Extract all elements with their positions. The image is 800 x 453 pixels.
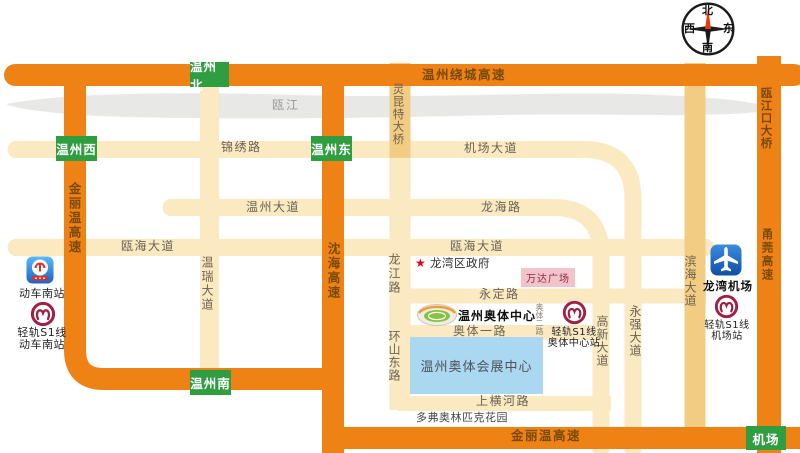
exit-wenzhou-east: 温州东 <box>311 136 352 161</box>
highway-yongguan-label: 甬莞高速 <box>761 228 773 282</box>
oujiang-river <box>6 93 757 118</box>
wenzhou-transit-map: 瓯江 温州绕城高速 金丽温高速 沈海高速 金丽温高速 甬莞高速 瓯江口大桥 灵昆… <box>0 0 800 453</box>
highway-jinliwen-bottom-label: 金丽温高速 <box>511 430 581 443</box>
airport-s1-station-label: 机场站 <box>701 331 753 343</box>
s1-logo-train-south <box>30 301 56 327</box>
expo-center-block: 温州奥体会展中心 <box>410 337 543 394</box>
road-yongding-label: 永定路 <box>479 288 520 300</box>
road-ouhai-mid-label: 瓯海大道 <box>450 240 504 252</box>
road-wenrui-label: 温瑞大道 <box>201 256 213 312</box>
exit-wenzhou-west: 温州西 <box>56 136 97 161</box>
road-jinxiu-label: 锦绣路 <box>221 141 262 153</box>
aoti-s1-station-label: 奥体中心站 <box>546 338 602 350</box>
road-aoti-2-label: 奥体二路 <box>535 303 543 335</box>
road-longjiang-label: 龙江路 <box>388 253 400 295</box>
road-huanshan-east-label: 环山东路 <box>388 330 400 382</box>
s1-logo-airport <box>714 294 739 319</box>
road-aoti-1-label: 奥体一路 <box>453 325 507 337</box>
road-shanghenghe-label: 上横河路 <box>476 395 530 407</box>
expo-center-label: 温州奥体会展中心 <box>420 356 532 375</box>
train-south-station-label: 动车南站 <box>18 288 66 299</box>
highway-shenhai-label: 沈海高速 <box>326 242 339 300</box>
government-star-icon: ★ <box>415 257 426 269</box>
road-longhai-label: 龙海路 <box>481 201 522 213</box>
railway-station-icon <box>26 256 54 284</box>
olympic-center-label: 温州奥体中心 <box>458 310 536 322</box>
road-ouhai-west-label: 瓯海大道 <box>121 240 175 252</box>
compass-west-label: 西 <box>684 23 695 34</box>
road-network-canvas <box>0 0 800 453</box>
longwan-airport-label: 龙湾机场 <box>703 281 753 293</box>
dove-garden-label: 多弗奥林匹克花园 <box>416 412 508 423</box>
s1-logo-aoti <box>562 300 587 325</box>
exit-wenzhou-south: 温州南 <box>190 370 231 395</box>
river-label: 瓯江 <box>272 99 300 111</box>
airport-icon <box>710 244 742 276</box>
exit-wenzhou-north: 温州北 <box>190 62 229 87</box>
compass-east-label: 东 <box>723 23 734 34</box>
road-wenzhou-avenue-label: 温州大道 <box>246 201 300 213</box>
road-binhai-label: 滨海大道 <box>684 255 696 307</box>
highway-jinliwen-left-label: 金丽温高速 <box>67 182 80 255</box>
train-south-s1-station-label: 动车南站 <box>14 339 70 351</box>
stadium-icon <box>416 303 458 327</box>
compass-south-label: 南 <box>702 42 713 53</box>
longwan-government-label: 龙湾区政府 <box>430 258 490 270</box>
oujiangkou-bridge-label: 瓯江口大桥 <box>760 87 772 150</box>
exit-airport: 机场 <box>746 426 786 450</box>
road-airport-avenue-label: 机场大道 <box>464 142 518 154</box>
highway-raocheng-label: 温州绕城高速 <box>422 69 506 82</box>
compass-north-label: 北 <box>702 5 713 16</box>
wanda-plaza-badge: 万达广场 <box>521 268 575 287</box>
road-yongqiang-label: 永强大道 <box>629 305 641 357</box>
lingkun-bridge-label: 灵昆特大桥 <box>392 83 404 146</box>
